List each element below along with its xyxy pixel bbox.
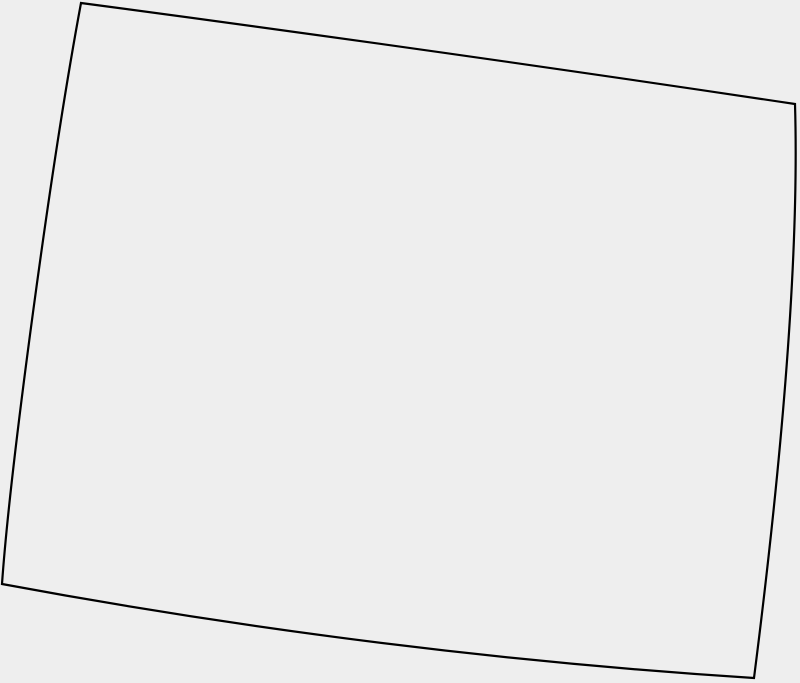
map-canvas [0,0,800,683]
map-svg [0,0,800,683]
state-outline[interactable] [2,3,796,678]
